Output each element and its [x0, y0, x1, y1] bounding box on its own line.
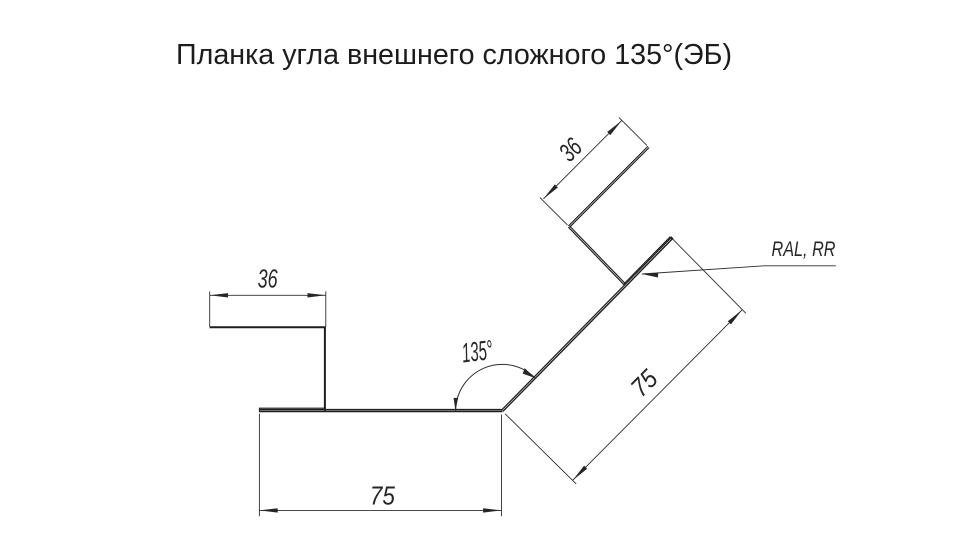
svg-text:75: 75 — [625, 363, 664, 402]
svg-text:36: 36 — [553, 132, 589, 168]
svg-text:135°: 135° — [460, 334, 495, 369]
svg-text:75: 75 — [370, 481, 395, 511]
svg-text:Планка угла внешнего сложного: Планка угла внешнего сложного 135°(ЭБ) — [176, 39, 732, 71]
svg-text:RAL, RR: RAL, RR — [772, 237, 836, 261]
svg-text:36: 36 — [258, 264, 278, 294]
